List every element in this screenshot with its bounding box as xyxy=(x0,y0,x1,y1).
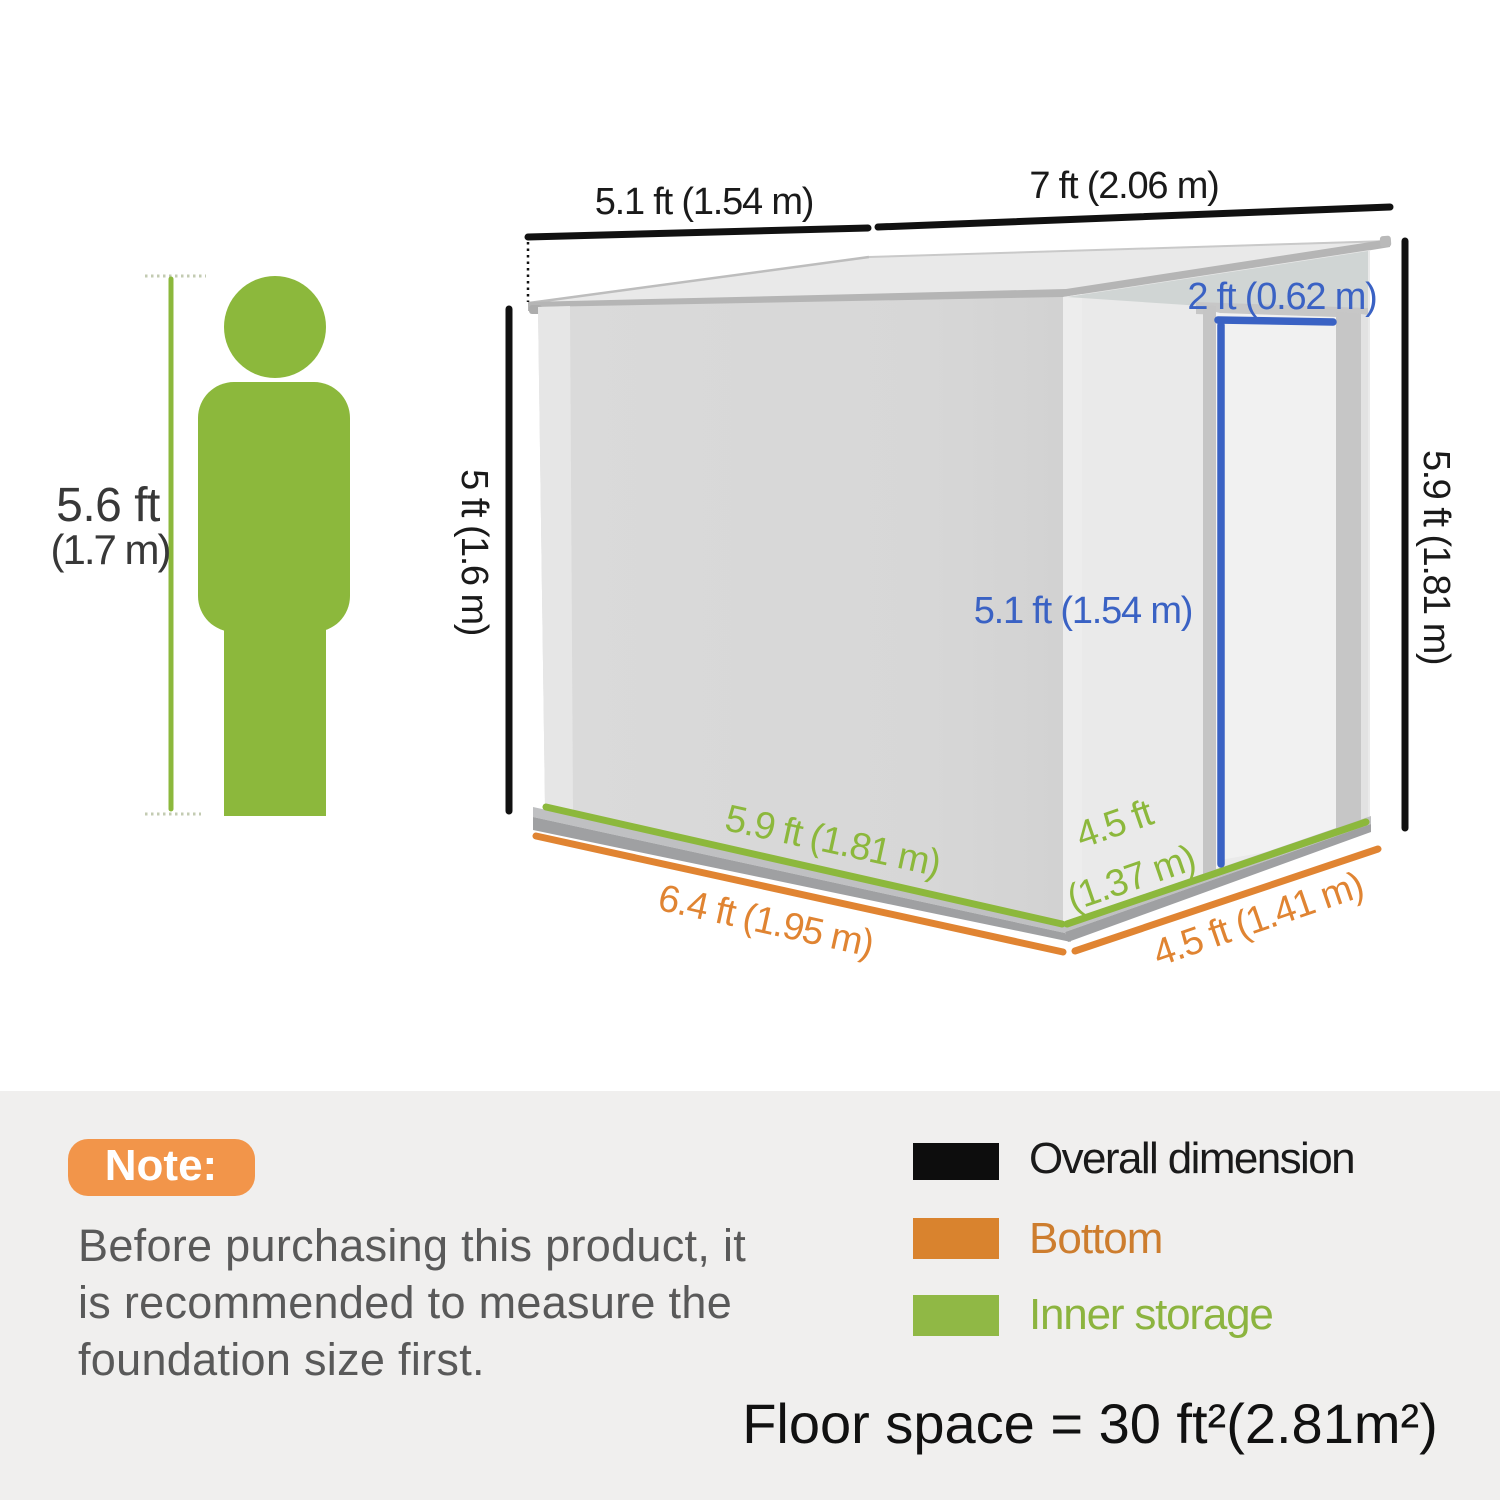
svg-text:Inner storage: Inner storage xyxy=(1029,1290,1273,1339)
svg-text:5.1 ft (1.54 m): 5.1 ft (1.54 m) xyxy=(595,181,814,223)
svg-text:Before purchasing this product: Before purchasing this product, it xyxy=(78,1220,746,1271)
svg-text:5 ft (1.6 m): 5 ft (1.6 m) xyxy=(453,469,495,635)
svg-text:foundation size first.: foundation size first. xyxy=(78,1334,485,1385)
svg-text:Bottom: Bottom xyxy=(1029,1214,1162,1263)
svg-text:is recommended to measure the: is recommended to measure the xyxy=(78,1277,732,1328)
svg-text:5.9 ft (1.81 m): 5.9 ft (1.81 m) xyxy=(1415,450,1457,664)
svg-text:5.6 ft: 5.6 ft xyxy=(56,479,160,532)
svg-text:2 ft (0.62 m): 2 ft (0.62 m) xyxy=(1187,276,1376,318)
svg-text:7 ft (2.06 m): 7 ft (2.06 m) xyxy=(1029,165,1218,207)
svg-text:Overall dimension: Overall dimension xyxy=(1029,1134,1354,1183)
svg-text:Note:: Note: xyxy=(105,1141,217,1190)
svg-text:Floor space = 30 ft²(2.81m²): Floor space = 30 ft²(2.81m²) xyxy=(742,1392,1438,1455)
svg-text:5.1 ft (1.54 m): 5.1 ft (1.54 m) xyxy=(974,590,1193,632)
svg-text:(1.7 m): (1.7 m) xyxy=(50,526,169,573)
